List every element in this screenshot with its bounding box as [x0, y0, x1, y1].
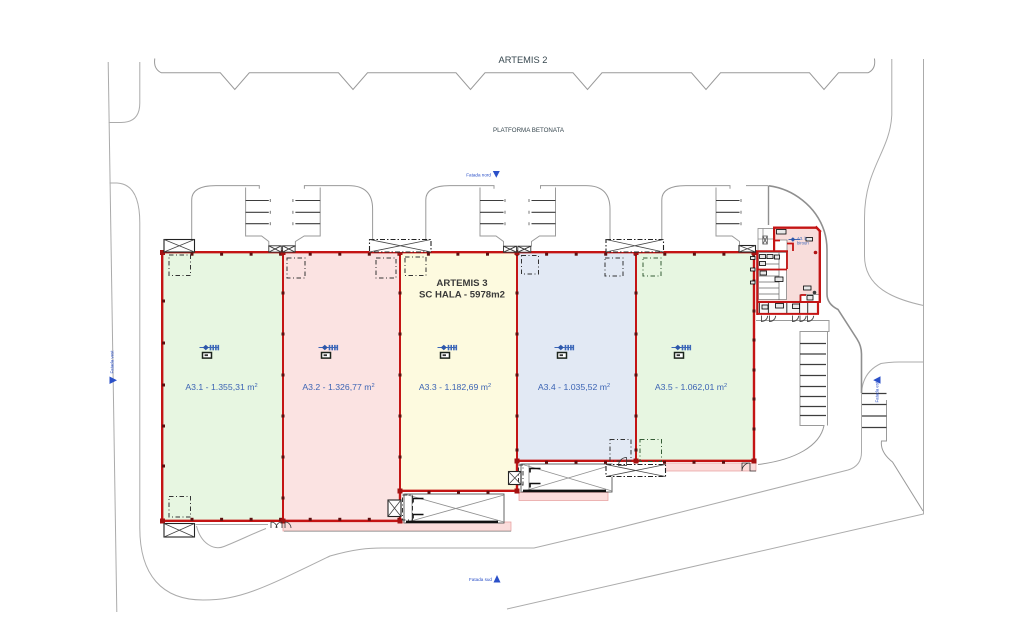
- svg-text:ARTEMIS 2: ARTEMIS 2: [499, 55, 548, 65]
- svg-text:ARTEMIS 3: ARTEMIS 3: [436, 278, 487, 289]
- svg-text:PLATFORMA BETONATA: PLATFORMA BETONATA: [493, 127, 565, 134]
- svg-text:birouri: birouri: [797, 241, 809, 246]
- svg-text:SC HALA - 5978m2: SC HALA - 5978m2: [419, 290, 505, 301]
- svg-text:Fatada sud: Fatada sud: [469, 577, 492, 582]
- svg-text:A3.5 - 1.062,01 m2: A3.5 - 1.062,01 m2: [655, 382, 727, 392]
- svg-text:Fatada vest: Fatada vest: [110, 350, 115, 374]
- svg-text:A3.2 - 1.326,77 m2: A3.2 - 1.326,77 m2: [302, 382, 374, 392]
- svg-text:A3.4 - 1.035,52 m2: A3.4 - 1.035,52 m2: [538, 382, 610, 392]
- svg-text:A3.3 - 1.182,69 m2: A3.3 - 1.182,69 m2: [419, 382, 491, 392]
- svg-text:A3.1 - 1.355,31 m2: A3.1 - 1.355,31 m2: [185, 382, 257, 392]
- svg-text:Fatada nord: Fatada nord: [466, 173, 491, 178]
- svg-text:Fatada est: Fatada est: [875, 381, 880, 403]
